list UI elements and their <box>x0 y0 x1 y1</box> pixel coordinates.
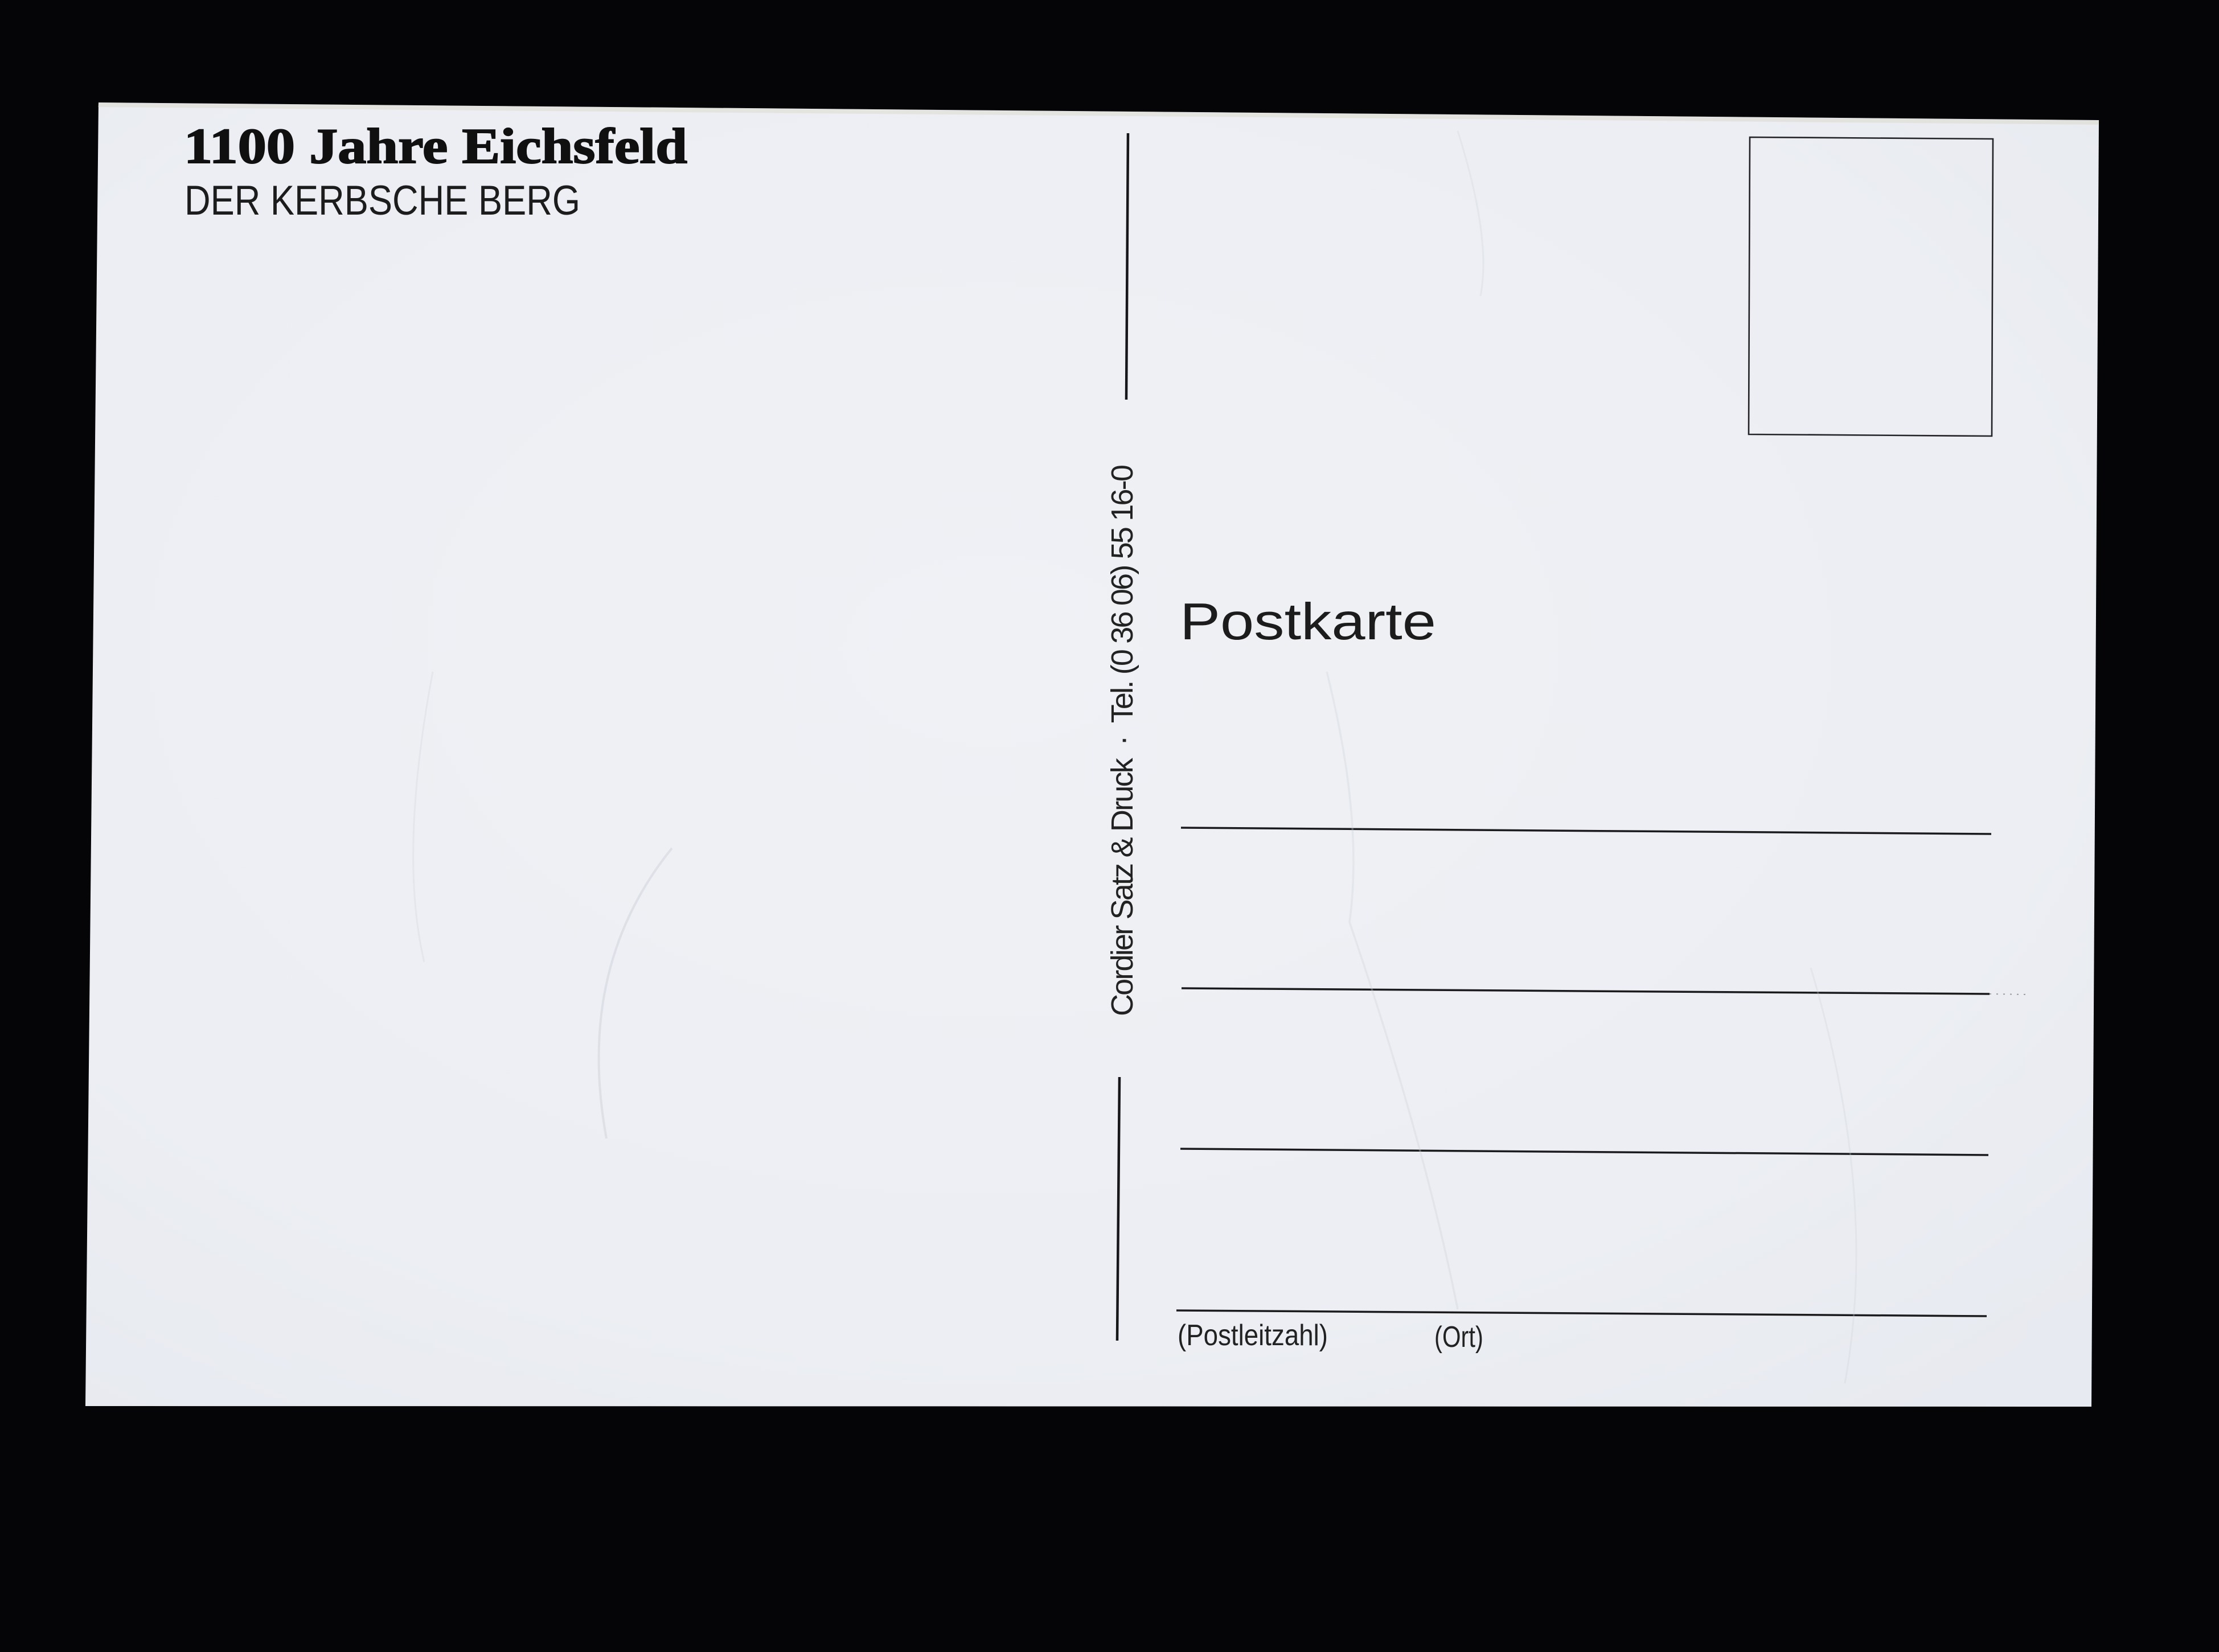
svg-text:(Postleitzahl): (Postleitzahl) <box>1178 1319 1328 1352</box>
svg-text:Cordier Satz & Druck · Tel.: Cordier Satz & Druck · Tel. (0 36 06) 55… <box>1105 465 1139 1016</box>
svg-text:1100 Jahre Eichsfeld: 1100 Jahre Eichsfeld <box>184 119 687 174</box>
svg-text:(Ort): (Ort) <box>1434 1321 1483 1354</box>
svg-text:Postkarte: Postkarte <box>1180 593 1436 651</box>
svg-text:DER KERBSCHE BERG: DER KERBSCHE BERG <box>184 178 580 224</box>
